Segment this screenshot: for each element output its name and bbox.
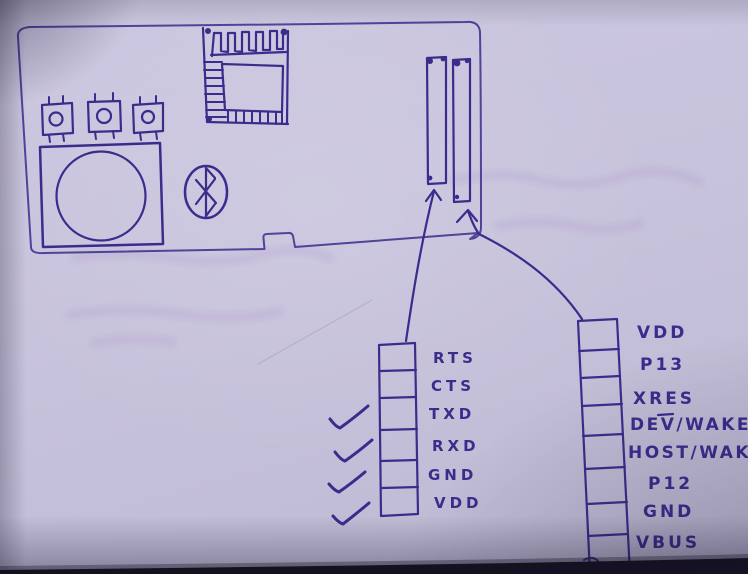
table-edge-shadow — [0, 554, 748, 574]
hand-drawn-board-diagram: RTS CTS TXD RXD GND VDD VDD P13 XRES DEV… — [0, 0, 748, 574]
module-pin-header: VDD P13 XRES DEV/WAKE HOST/WAKE P12 GND … — [578, 319, 748, 574]
pin-label-xres: XRES — [633, 389, 695, 409]
push-button-icon — [133, 96, 163, 140]
checkmark-txd — [330, 406, 368, 428]
photographed-sketch: { "palette": { "ink": "#3b2c8c", "paper"… — [0, 0, 748, 574]
pin-label-cts: CTS — [431, 377, 475, 395]
uart-pin-header: RTS CTS TXD RXD GND VDD — [329, 343, 483, 524]
arrow-to-left-slot — [406, 190, 441, 341]
push-button-icon — [88, 93, 121, 139]
ink-bleed-smudges — [70, 172, 700, 343]
push-buttons — [42, 93, 163, 142]
checkmark-vdd — [333, 503, 369, 524]
dev-active-low-overline — [658, 414, 673, 415]
checkmark-rxd — [335, 440, 372, 461]
checkmarks — [329, 406, 372, 524]
callout-arrows — [406, 190, 582, 341]
chip-side-pins — [204, 62, 282, 124]
checkmark-gnd — [329, 472, 365, 492]
push-button-icon — [42, 96, 73, 142]
pin-label-p12: P12 — [648, 474, 693, 494]
pin-label-p13: P13 — [640, 355, 685, 375]
pin-label-vbus: VBUS — [636, 533, 700, 553]
bluetooth-icon — [185, 166, 227, 218]
pin-label-vdd: VDD — [434, 494, 483, 512]
pin-label-vdd-2: VDD — [637, 323, 687, 343]
speaker-icon — [40, 143, 163, 247]
pin-label-txd: TXD — [429, 405, 475, 423]
pin-label-rts: RTS — [433, 349, 477, 367]
pin-label-host-wake: HOST/WAKE — [628, 443, 748, 463]
pin-label-rxd: RXD — [432, 437, 480, 455]
ic-chip-icon — [203, 28, 288, 124]
pin-label-gnd: GND — [428, 466, 477, 484]
pin-label-gnd-2: GND — [643, 502, 694, 522]
pin-label-dev-wake: DEV/WAKE — [630, 415, 748, 435]
connector-slot-icon — [427, 57, 446, 184]
board-outline — [18, 22, 481, 253]
